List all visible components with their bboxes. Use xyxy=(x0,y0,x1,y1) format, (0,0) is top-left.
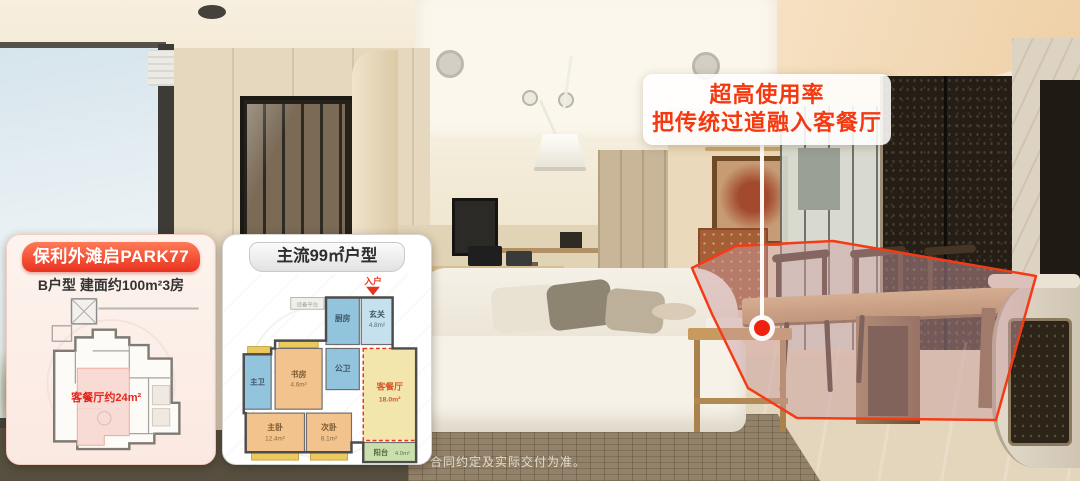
project-card: 保利外滩启PARK77 B户型 建面约100m²3房 客餐厅约24m² xyxy=(6,234,216,465)
scene-window-frame xyxy=(0,42,166,48)
room-study-area: 4.6m² xyxy=(290,382,306,389)
disclaimer-text: 合同约定及实际交付为准。 xyxy=(430,453,586,470)
scene-desk-item xyxy=(506,251,532,266)
bay-window xyxy=(248,346,272,353)
room-second-bedroom-area: 8.1m² xyxy=(321,436,337,443)
furniture-bed xyxy=(152,386,169,405)
scene-side-table xyxy=(688,328,792,340)
scene-glass-interior xyxy=(798,148,840,210)
scene-island-counter xyxy=(988,274,1080,288)
project-floorplan: 客餐厅约24m² xyxy=(7,295,215,456)
promo-image: 超高使用率 把传统过道融入客餐厅 保利外滩启PARK77 B户型 建面约100m… xyxy=(0,0,1080,481)
scene-island-glass-panel xyxy=(1008,318,1072,446)
room-equipment-label: 设备平台 xyxy=(297,300,319,308)
room-master-bedroom-area: 12.4m² xyxy=(265,436,285,443)
room-kitchen-label: 厨房 xyxy=(335,313,351,323)
landing xyxy=(52,326,71,341)
scene-picture-light xyxy=(705,147,785,151)
entry-label: 入户 xyxy=(364,275,382,286)
living-dining-label: 客餐厅约24m² xyxy=(70,390,141,404)
callout-leader-line xyxy=(760,136,764,320)
room-balcony-area: 4.0m² xyxy=(395,451,410,457)
room-study-label: 书房 xyxy=(291,369,307,379)
scene-cushion xyxy=(545,278,614,331)
scene-ceiling-speaker xyxy=(436,50,464,78)
room-living-dining-area: 18.0m² xyxy=(379,396,401,403)
room-master-bath-label: 主卫 xyxy=(250,378,265,387)
room-entry-hall-area: 4.8m² xyxy=(369,322,385,329)
entry-arrow-icon xyxy=(366,287,380,296)
room-guest-bath-label: 公卫 xyxy=(335,364,351,373)
scene-table-leg xyxy=(868,326,908,416)
scene-chair-post xyxy=(928,250,933,294)
living-dining-highlight xyxy=(77,368,129,445)
room-living-dining xyxy=(363,348,416,440)
scene-downlight xyxy=(522,90,538,106)
room-master-bedroom-label: 主卧 xyxy=(267,422,283,432)
mainstream-card-title: 主流99㎡户型 xyxy=(249,242,405,272)
room-entry-hall-label: 玄关 xyxy=(369,309,385,319)
scene-recessed-light xyxy=(198,5,226,19)
mainstream-card: 主流99㎡户型 入户 设备平台 厨房 玄关 4.8m² 公卫 书房 4.6 xyxy=(222,234,432,465)
callout-line2: 把传统过道融入客餐厅 xyxy=(645,109,889,137)
scene-side-table-leg xyxy=(780,340,786,432)
furniture-bed xyxy=(152,409,169,426)
scene-decor-bowl xyxy=(652,303,696,320)
scene-photo-wall-glare xyxy=(247,104,345,234)
scene-side-table-leg xyxy=(694,340,700,432)
room-living-dining-label: 客餐厅 xyxy=(375,381,403,392)
scene-wood-column xyxy=(352,50,398,242)
scene-dark-cabinet xyxy=(1040,80,1080,285)
project-card-title: 保利外滩启PARK77 xyxy=(22,242,200,272)
mainstream-floorplan: 入户 设备平台 厨房 玄关 4.8m² 公卫 书房 4.6m² 主卫 xyxy=(223,274,431,471)
scene-side-table-shelf xyxy=(694,398,788,404)
scene-shelf-item xyxy=(560,232,582,248)
callout-bubble: 超高使用率 把传统过道融入客餐厅 xyxy=(643,74,891,145)
project-floorplan-svg: 客餐厅约24m² xyxy=(15,295,207,451)
project-card-subtitle: B户型 建面约100m²3房 xyxy=(7,275,215,295)
callout-line1: 超高使用率 xyxy=(645,81,889,109)
scene-pendant-lamp-rim xyxy=(534,167,586,171)
location-marker-dot xyxy=(754,320,770,336)
room-balcony-label: 阳台 xyxy=(374,448,389,457)
scene-laptop xyxy=(468,246,502,266)
mainstream-floorplan-svg: 入户 设备平台 厨房 玄关 4.8m² 公卫 书房 4.6m² 主卫 xyxy=(233,274,421,466)
room-master-bedroom xyxy=(246,413,305,452)
room-second-bedroom xyxy=(306,413,351,452)
room-second-bedroom-label: 次卧 xyxy=(321,422,337,432)
